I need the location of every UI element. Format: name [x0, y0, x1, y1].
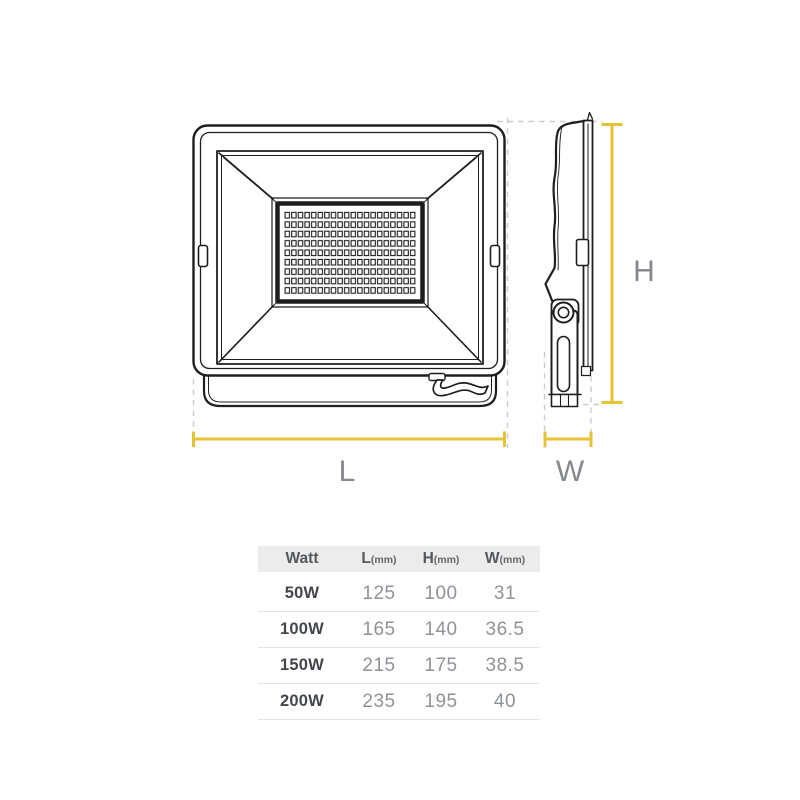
bracket-foot	[552, 395, 578, 407]
bracket-pivot	[554, 303, 574, 323]
side-view-drawing	[546, 113, 593, 407]
length-cell: 165	[346, 619, 412, 641]
side-top-lip	[588, 113, 593, 121]
width-cell: 38.5	[470, 655, 540, 677]
height-cell: 140	[412, 619, 470, 641]
length-cell: 125	[346, 583, 412, 605]
length-label: L	[339, 455, 356, 488]
height-cell: 100	[412, 583, 470, 605]
dimension-line-length	[194, 432, 505, 448]
left-clip	[199, 246, 208, 267]
front-view-drawing	[194, 126, 505, 407]
table-row-100w: 100W 165 140 36.5	[258, 612, 540, 648]
power-cable	[433, 380, 488, 396]
spec-table: Watt L(mm) H(mm) W(mm) 50W 125 100 31 10…	[258, 546, 540, 720]
watt-cell: 100W	[258, 620, 346, 639]
side-body-outline	[546, 121, 585, 303]
width-cell: 31	[470, 583, 540, 605]
spec-table-header-row: Watt L(mm) H(mm) W(mm)	[258, 546, 540, 572]
height-cell: 175	[412, 655, 470, 677]
side-face-tab	[577, 240, 589, 266]
led-grid	[284, 211, 416, 296]
table-row-150w: 150W 215 175 38.5	[258, 648, 540, 684]
length-cell: 215	[346, 655, 412, 677]
floodlight-dimension-diagram: L W H	[0, 0, 800, 540]
mounting-bracket	[549, 300, 581, 407]
height-cell: 195	[412, 691, 470, 713]
product-dimension-sheet: L W H Watt L(mm) H(mm) W(mm) 50W 125 100…	[0, 0, 800, 800]
dimension-line-width	[545, 432, 591, 448]
right-clip	[491, 246, 500, 267]
col-header-height: H(mm)	[412, 550, 470, 568]
width-label: W	[556, 455, 585, 488]
spec-table-body: 50W 125 100 31 100W 165 140 36.5 150W 21…	[258, 576, 540, 720]
col-header-watt: Watt	[258, 550, 346, 568]
watt-cell: 150W	[258, 656, 346, 675]
side-bottom-step	[582, 367, 591, 376]
watt-cell: 200W	[258, 692, 346, 711]
width-cell: 40	[470, 691, 540, 713]
width-cell: 36.5	[470, 619, 540, 641]
table-row-200w: 200W 235 195 40	[258, 684, 540, 720]
height-label: H	[633, 255, 655, 288]
table-row-50w: 50W 125 100 31	[258, 576, 540, 612]
watt-cell: 50W	[258, 584, 346, 603]
dimension-line-height	[602, 125, 623, 403]
col-header-length: L(mm)	[346, 550, 412, 568]
col-header-width: W(mm)	[470, 550, 540, 568]
length-cell: 235	[346, 691, 412, 713]
